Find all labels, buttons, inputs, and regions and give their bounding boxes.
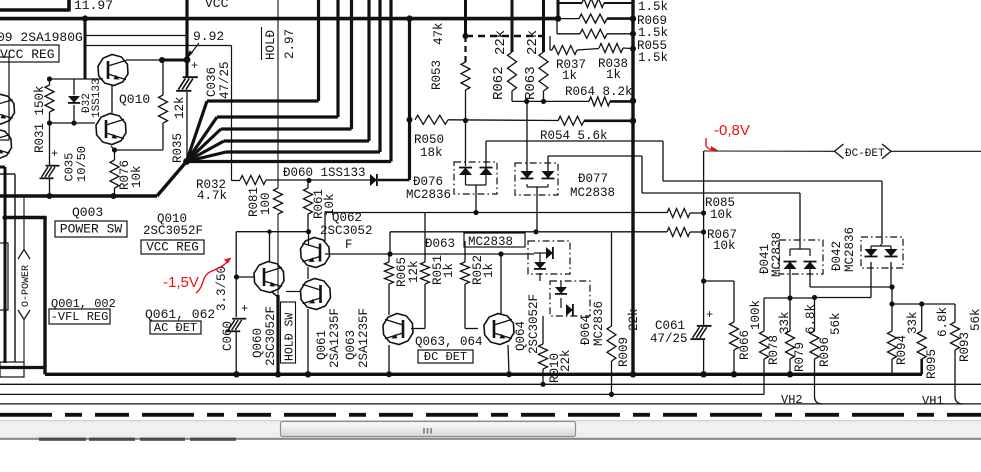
svg-text:2SC3052F: 2SC3052F bbox=[143, 224, 203, 238]
svg-text:22k: 22k bbox=[525, 30, 541, 55]
svg-text:R063: R063 bbox=[523, 66, 539, 100]
svg-text:R053: R053 bbox=[430, 60, 444, 90]
svg-text:R079: R079 bbox=[793, 342, 807, 372]
svg-text:6.8k: 6.8k bbox=[804, 304, 818, 334]
svg-text:12k: 12k bbox=[173, 96, 187, 119]
svg-text:100: 100 bbox=[259, 192, 273, 215]
svg-text:Đ077: Đ077 bbox=[578, 172, 608, 186]
svg-text:R095: R095 bbox=[925, 349, 939, 379]
svg-text:1k: 1k bbox=[606, 68, 621, 82]
svg-text:MC2836: MC2836 bbox=[406, 188, 451, 202]
svg-text:Q064: Q064 bbox=[514, 321, 528, 351]
svg-text:6.8k: 6.8k bbox=[936, 307, 950, 337]
svg-text:22k: 22k bbox=[627, 308, 641, 331]
svg-text:10k: 10k bbox=[710, 208, 733, 222]
svg-text:MC2836: MC2836 bbox=[843, 227, 857, 272]
svg-text:C036: C036 bbox=[205, 67, 219, 97]
svg-text:R035: R035 bbox=[171, 133, 185, 163]
svg-text:+: + bbox=[191, 59, 198, 73]
svg-text:VCC: VCC bbox=[205, 0, 229, 11]
svg-text:Q061: Q061 bbox=[315, 330, 329, 360]
svg-text:10/50: 10/50 bbox=[75, 146, 89, 182]
svg-text:VH1: VH1 bbox=[922, 394, 944, 408]
svg-text:Q003: Q003 bbox=[72, 205, 103, 220]
svg-text:AC ĐET: AC ĐET bbox=[154, 321, 197, 335]
svg-text:Đ076: Đ076 bbox=[413, 175, 443, 189]
svg-text:56k: 56k bbox=[829, 312, 843, 335]
svg-text:MC2838: MC2838 bbox=[770, 232, 784, 277]
svg-text:R062: R062 bbox=[491, 66, 507, 100]
svg-text:R031 150k: R031 150k bbox=[33, 85, 47, 153]
svg-text:+: + bbox=[51, 147, 58, 161]
svg-text:2SA1235F: 2SA1235F bbox=[357, 308, 371, 368]
svg-text:ĐC-ĐET: ĐC-ĐET bbox=[845, 148, 885, 160]
svg-text:F: F bbox=[345, 238, 353, 252]
svg-text:Q063: Q063 bbox=[344, 330, 358, 360]
svg-text:10k: 10k bbox=[130, 165, 144, 188]
svg-text:09 2SA1980G: 09 2SA1980G bbox=[0, 30, 83, 45]
svg-text:-1,5V: -1,5V bbox=[163, 274, 199, 291]
svg-text:3.3/50: 3.3/50 bbox=[215, 266, 229, 311]
svg-text:1k: 1k bbox=[482, 263, 496, 278]
svg-text:22k: 22k bbox=[493, 30, 509, 55]
svg-text:18k: 18k bbox=[420, 146, 443, 160]
svg-text:VCC REG: VCC REG bbox=[0, 47, 55, 62]
svg-text:HOLĐ: HOLĐ bbox=[264, 30, 278, 60]
svg-text:47k: 47k bbox=[432, 22, 446, 45]
svg-text:2SC3052F: 2SC3052F bbox=[264, 306, 278, 366]
svg-text:2SA1235F: 2SA1235F bbox=[328, 308, 342, 368]
svg-text:1.5k: 1.5k bbox=[638, 26, 668, 40]
svg-text:+: + bbox=[241, 302, 248, 316]
svg-text:R066: R066 bbox=[738, 330, 752, 360]
svg-text:-VFL REG: -VFL REG bbox=[51, 310, 109, 324]
svg-text:2SC3052: 2SC3052 bbox=[320, 224, 373, 238]
svg-text:47/25: 47/25 bbox=[650, 332, 688, 346]
svg-text:Đ060 1SS133: Đ060 1SS133 bbox=[283, 166, 366, 180]
svg-text:Đ042: Đ042 bbox=[830, 241, 844, 271]
svg-text:O-POWER: O-POWER bbox=[21, 265, 32, 307]
svg-text:33k: 33k bbox=[906, 311, 920, 334]
svg-text:1k: 1k bbox=[562, 69, 577, 83]
svg-text:R094: R094 bbox=[895, 335, 909, 365]
svg-text:R064 8.2k: R064 8.2k bbox=[565, 85, 633, 99]
svg-text:C060: C060 bbox=[221, 321, 235, 351]
svg-text:POWER SW: POWER SW bbox=[60, 222, 123, 237]
svg-text:MC2836: MC2836 bbox=[592, 301, 606, 346]
svg-text:10k: 10k bbox=[713, 239, 736, 253]
svg-text:1k: 1k bbox=[442, 263, 456, 278]
svg-text:C061: C061 bbox=[655, 319, 685, 333]
svg-text:-0,8V: -0,8V bbox=[714, 122, 750, 139]
svg-text:4.7k: 4.7k bbox=[197, 189, 227, 203]
svg-text:R009: R009 bbox=[617, 337, 631, 367]
svg-text:VCC REG: VCC REG bbox=[146, 241, 199, 255]
svg-text:MC2838: MC2838 bbox=[468, 235, 513, 249]
svg-text:2.97: 2.97 bbox=[283, 29, 297, 59]
svg-text:22k: 22k bbox=[559, 349, 573, 372]
svg-text:1.5k: 1.5k bbox=[638, 51, 668, 65]
svg-text:+: + bbox=[706, 308, 713, 322]
svg-text:47/25: 47/25 bbox=[218, 61, 232, 99]
svg-text:9.92: 9.92 bbox=[193, 29, 224, 44]
svg-text:R096: R096 bbox=[818, 337, 832, 367]
svg-text:Đ063: Đ063 bbox=[425, 237, 455, 251]
svg-text:Đ064: Đ064 bbox=[579, 315, 593, 345]
svg-text:Q061, 062: Q061, 062 bbox=[145, 307, 215, 322]
svg-text:R093: R093 bbox=[958, 332, 972, 362]
svg-text:Q010: Q010 bbox=[119, 92, 150, 107]
svg-text:R078: R078 bbox=[767, 335, 781, 365]
svg-text:VH2: VH2 bbox=[781, 393, 803, 407]
svg-text:HOLĐ SW: HOLĐ SW bbox=[284, 313, 297, 361]
svg-text:ĐC ĐET: ĐC ĐET bbox=[424, 350, 467, 364]
svg-text:100k: 100k bbox=[749, 300, 763, 330]
svg-text:MC2838: MC2838 bbox=[570, 186, 615, 200]
svg-text:1.5k: 1.5k bbox=[638, 0, 668, 14]
svg-text:1SS133: 1SS133 bbox=[91, 78, 103, 118]
svg-text:2SC3052F: 2SC3052F bbox=[527, 294, 541, 354]
svg-text:11.97: 11.97 bbox=[74, 0, 113, 13]
svg-text:Q063, 064: Q063, 064 bbox=[415, 335, 483, 349]
svg-text:R050: R050 bbox=[414, 133, 444, 147]
svg-text:Q060: Q060 bbox=[251, 328, 265, 358]
svg-text:56k: 56k bbox=[969, 308, 981, 331]
